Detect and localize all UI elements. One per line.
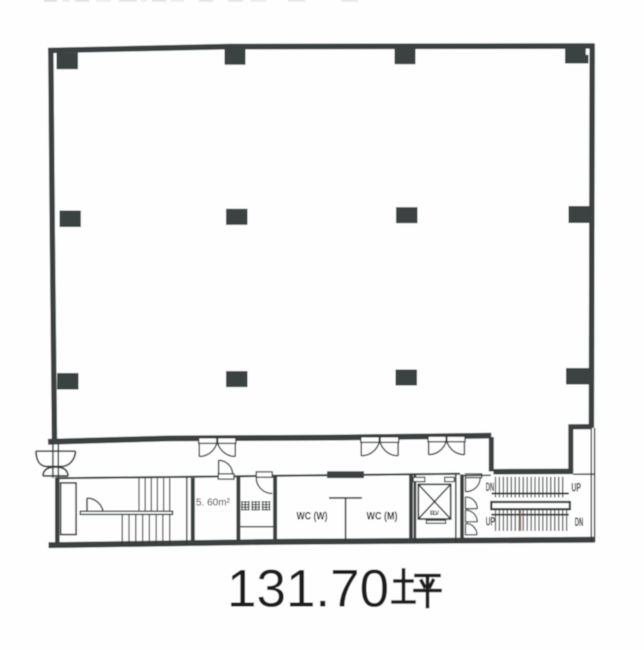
svg-text:5. 60m²: 5. 60m² (196, 498, 231, 509)
svg-text:WC (M): WC (M) (367, 511, 398, 523)
svg-text:UP: UP (486, 517, 496, 529)
svg-text:ELV: ELV (430, 511, 439, 517)
svg-text:WC (W): WC (W) (297, 511, 328, 523)
svg-text:DN: DN (575, 517, 584, 529)
svg-text:DN: DN (486, 482, 495, 494)
svg-text:UP: UP (571, 483, 581, 495)
svg-text:131.70: 131.70 (227, 560, 389, 619)
